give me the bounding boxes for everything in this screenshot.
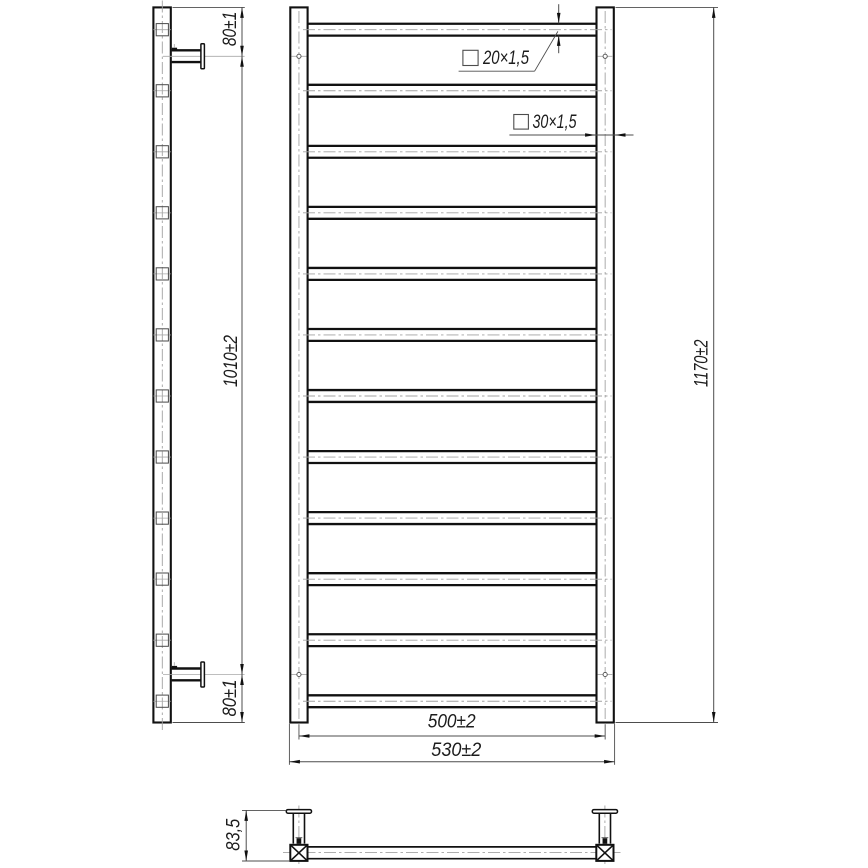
svg-text:83,5: 83,5	[224, 818, 245, 850]
svg-text:30×1,5: 30×1,5	[533, 112, 577, 133]
svg-text:20×1,5: 20×1,5	[482, 48, 529, 69]
svg-text:530±2: 530±2	[431, 740, 481, 761]
svg-text:80±1: 80±1	[220, 680, 241, 717]
svg-text:80±1: 80±1	[220, 12, 241, 47]
svg-text:500±2: 500±2	[428, 711, 476, 732]
svg-text:1170±2: 1170±2	[691, 339, 712, 387]
svg-text:1010±2: 1010±2	[221, 335, 242, 387]
